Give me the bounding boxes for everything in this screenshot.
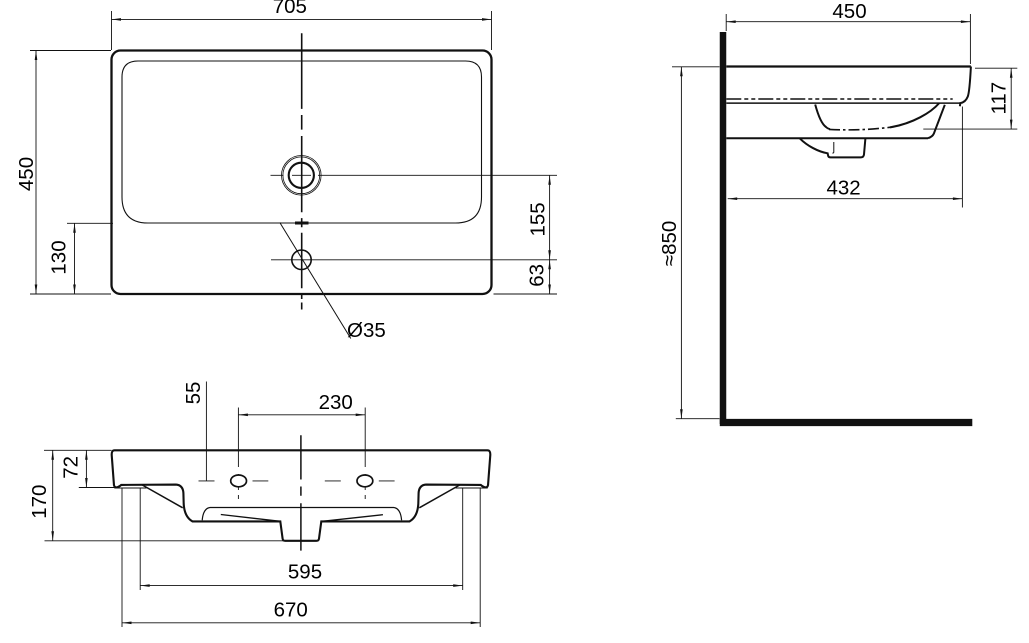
- svg-text:450: 450: [15, 157, 38, 191]
- svg-text:130: 130: [48, 240, 71, 274]
- svg-text:450: 450: [832, 0, 866, 23]
- svg-text:63: 63: [526, 264, 549, 287]
- svg-text:Ø35: Ø35: [347, 319, 386, 342]
- svg-text:≈850: ≈850: [658, 221, 681, 266]
- svg-text:55: 55: [182, 382, 205, 405]
- svg-text:170: 170: [28, 485, 51, 519]
- svg-text:155: 155: [526, 202, 549, 236]
- svg-text:230: 230: [319, 391, 353, 414]
- svg-text:117: 117: [987, 82, 1010, 115]
- svg-text:72: 72: [60, 456, 83, 479]
- svg-text:432: 432: [826, 177, 860, 200]
- svg-text:670: 670: [274, 599, 308, 622]
- svg-text:595: 595: [288, 561, 322, 584]
- svg-text:705: 705: [273, 0, 307, 18]
